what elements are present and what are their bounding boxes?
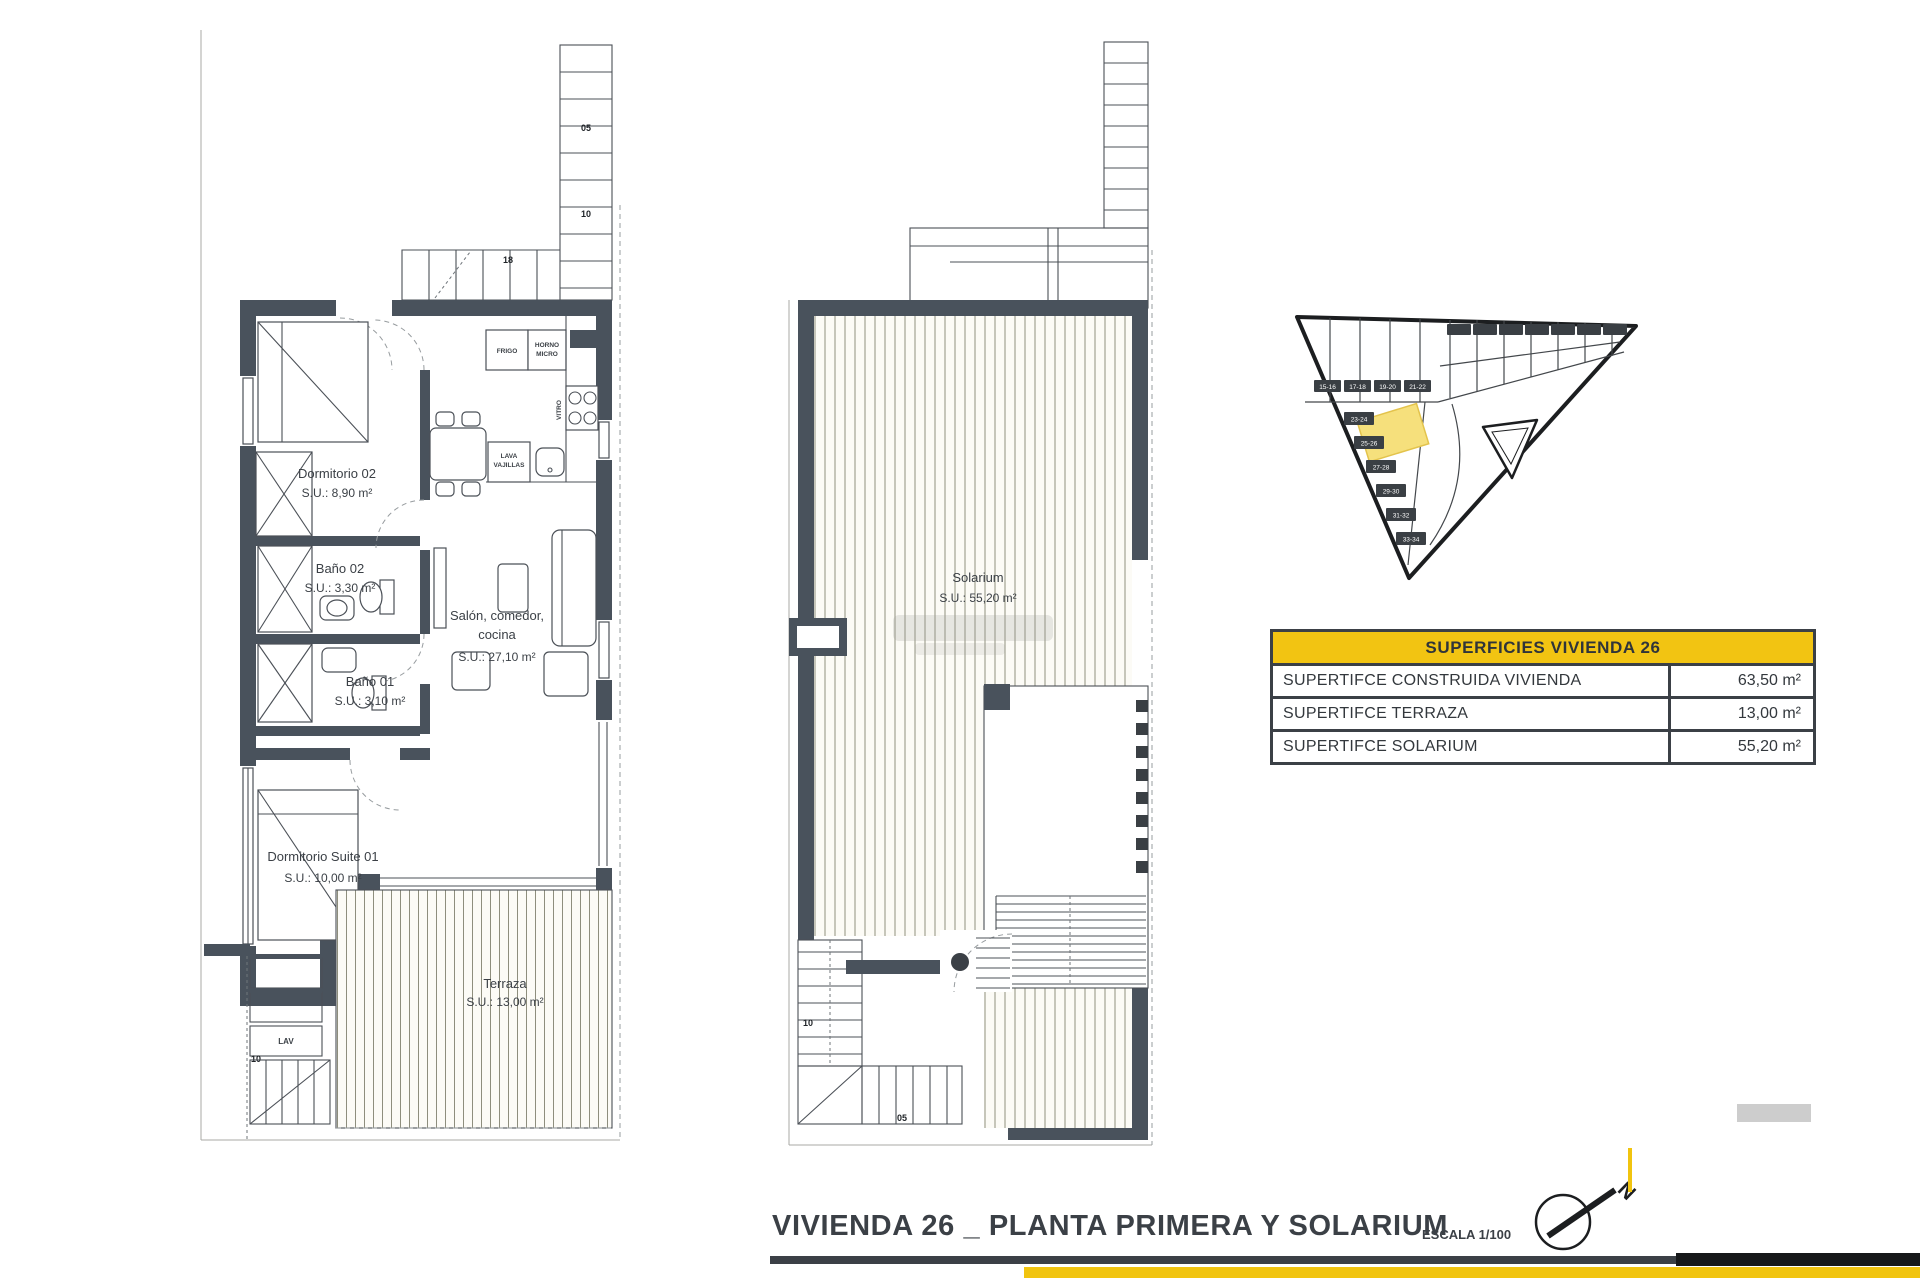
north-compass-icon: N — [1536, 1178, 1640, 1249]
stair-step-number: 18 — [503, 255, 513, 265]
salon-area: S.U.: 27,10 m² — [458, 650, 535, 664]
hob-label: VITRO — [556, 400, 563, 420]
chip-label: 15-16 — [1319, 384, 1336, 391]
bano02-name: Baño 02 — [316, 561, 364, 576]
salon-name2: cocina — [478, 627, 516, 642]
terraza: Terraza S.U.: 13,00 m² — [336, 890, 612, 1128]
bano02-area: S.U.: 3,30 m² — [305, 581, 376, 595]
dishwasher-label2: VAJILLAS — [494, 462, 526, 469]
table-row: SUPERTIFCE TERRAZA 13,00 m² — [1272, 698, 1815, 731]
terraza-area: S.U.: 13,00 m² — [466, 995, 543, 1009]
chip-label: 19-20 — [1379, 384, 1396, 391]
dormitorio02-area: S.U.: 8,90 m² — [302, 486, 373, 500]
table-header: SUPERFICIES VIVIENDA 26 — [1272, 631, 1815, 665]
suite-name: Dormitorio Suite 01 — [267, 849, 378, 864]
stair-step-down: 05 — [897, 1113, 907, 1123]
first-floor-plan: 05 10 18 — [201, 30, 620, 1140]
surfaces-table: SUPERFICIES VIVIENDA 26 SUPERTIFCE CONST… — [1270, 629, 1816, 765]
solarium-name: Solarium — [952, 570, 1003, 585]
footer-black-bar — [1676, 1253, 1920, 1266]
oven-label2: MICRO — [536, 351, 558, 358]
footer-yellow-bar — [1024, 1267, 1920, 1278]
gray-block — [1737, 1104, 1811, 1122]
fridge-label: FRIGO — [497, 348, 518, 355]
solarium-plan: 10 05 Solarium S.U.: 55,20 m² — [789, 42, 1152, 1145]
chip-label: 25-26 — [1361, 441, 1378, 448]
row-label: SUPERTIFCE TERRAZA — [1272, 698, 1670, 731]
stair-step-up: 10 — [803, 1018, 813, 1028]
bano01-name: Baño 01 — [346, 674, 394, 689]
chip-label: 17-18 — [1349, 384, 1366, 391]
table-row: SUPERTIFCE CONSTRUIDA VIVIENDA 63,50 m² — [1272, 665, 1815, 698]
bano01-area: S.U.: 3,10 m² — [335, 694, 406, 708]
suite-area: S.U.: 10,00 m² — [284, 871, 361, 885]
solarium-stair: 10 05 — [798, 930, 1012, 1128]
stair-step-number: 05 — [581, 123, 591, 133]
chip-label: 31-32 — [1393, 513, 1410, 520]
chip-label: 21-22 — [1409, 384, 1426, 391]
solarium-area: S.U.: 55,20 m² — [939, 591, 1016, 605]
exterior-stair-top: 05 10 18 — [402, 45, 612, 300]
oven-label: HORNO — [535, 342, 559, 349]
chip-label: 29-30 — [1383, 489, 1400, 496]
planter — [789, 618, 847, 656]
utility-block: LAV 10 — [204, 944, 330, 1140]
table-header-row: SUPERFICIES VIVIENDA 26 — [1272, 631, 1815, 665]
stair-step-number: 10 — [581, 209, 591, 219]
row-label: SUPERTIFCE SOLARIUM — [1272, 731, 1670, 764]
table-row: SUPERTIFCE SOLARIUM 55,20 m² — [1272, 731, 1815, 764]
chip-label: 27-28 — [1373, 465, 1390, 472]
dormitorio02-name: Dormitorio 02 — [298, 466, 376, 481]
chip-label: 33-34 — [1403, 537, 1420, 544]
row-value: 13,00 m² — [1670, 698, 1815, 731]
salon-name1: Salón, comedor, — [450, 608, 544, 623]
scale-label: ESCALA 1/100 — [1422, 1227, 1511, 1242]
chip-label: 23-24 — [1351, 417, 1368, 424]
row-value: 55,20 m² — [1670, 731, 1815, 764]
kitchen: FRIGO HORNO MICRO LAVA VAJILLAS VITRO — [486, 316, 598, 482]
north-letter: N — [1613, 1178, 1640, 1205]
row-label: SUPERTIFCE CONSTRUIDA VIVIENDA — [1272, 665, 1670, 698]
utility-step-number: 10 — [251, 1054, 261, 1064]
site-plan: 15-16 17-18 19-20 21-22 23-24 25-26 27-2… — [1297, 317, 1636, 578]
plan-sheet: 05 10 18 — [0, 0, 1920, 1280]
dishwasher-label: LAVA — [501, 453, 518, 460]
yellow-tick — [1628, 1148, 1632, 1192]
roof-outline — [910, 42, 1148, 308]
terraza-name: Terraza — [483, 976, 527, 991]
row-value: 63,50 m² — [1670, 665, 1815, 698]
sheet-title: VIVIENDA 26 _ PLANTA PRIMERA Y SOLARIUM — [772, 1210, 1448, 1243]
laundry-label: LAV — [278, 1037, 294, 1046]
